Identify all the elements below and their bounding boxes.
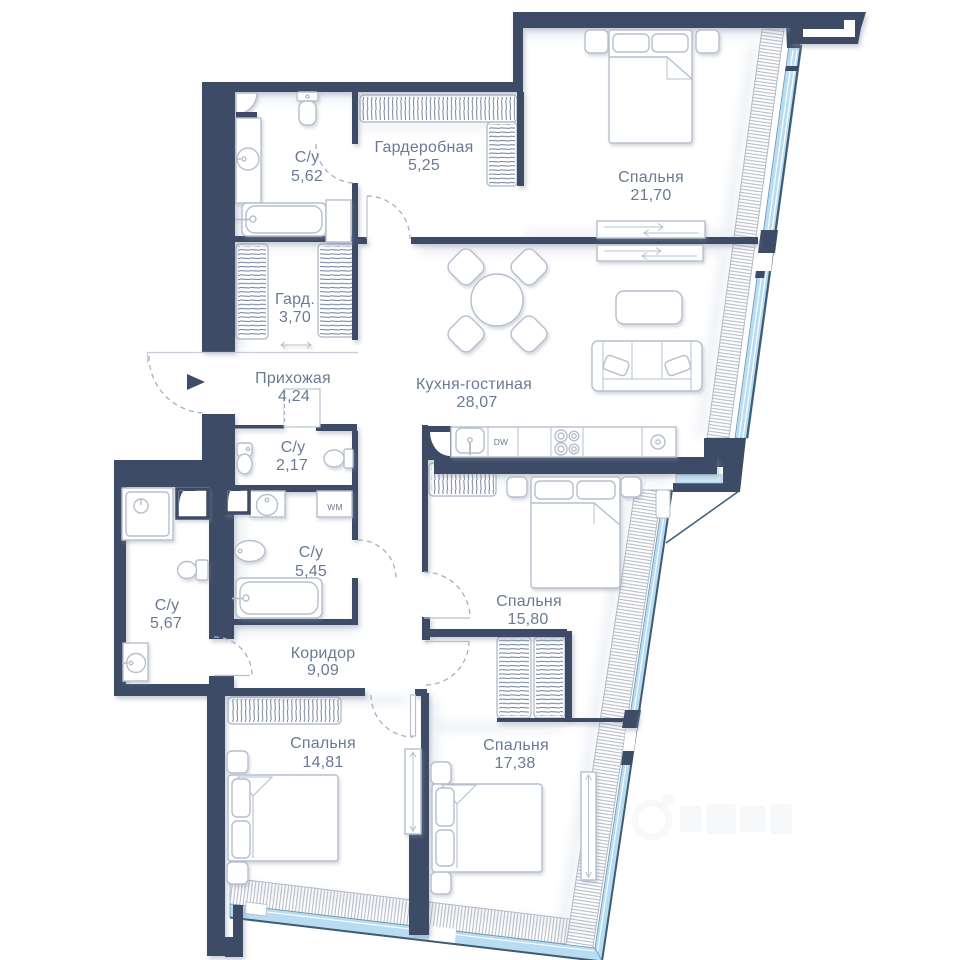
svg-text:С/у: С/у <box>299 544 324 561</box>
svg-text:С/у: С/у <box>281 439 306 456</box>
svg-text:2,17: 2,17 <box>276 457 308 474</box>
svg-text:9,09: 9,09 <box>307 662 339 679</box>
svg-text:Спальня: Спальня <box>618 169 684 186</box>
svg-text:Гард.: Гард. <box>275 291 315 308</box>
svg-text:С/у: С/у <box>155 597 180 614</box>
svg-text:Гардеробная: Гардеробная <box>375 139 474 156</box>
svg-text:21,70: 21,70 <box>630 187 671 204</box>
svg-text:WM: WM <box>327 502 343 512</box>
svg-text:28,07: 28,07 <box>456 394 497 411</box>
svg-text:Кухня-гостиная: Кухня-гостиная <box>416 376 532 393</box>
svg-text:17,38: 17,38 <box>494 755 535 772</box>
svg-text:14,81: 14,81 <box>302 754 343 771</box>
svg-text:Коридор: Коридор <box>291 645 356 662</box>
svg-text:DW: DW <box>494 437 509 447</box>
svg-text:15,80: 15,80 <box>507 611 548 628</box>
svg-text:Спальня: Спальня <box>496 593 562 610</box>
svg-text:Спальня: Спальня <box>483 737 549 754</box>
svg-text:5,67: 5,67 <box>150 615 182 632</box>
svg-text:5,62: 5,62 <box>291 168 323 185</box>
svg-text:Спальня: Спальня <box>290 735 356 752</box>
svg-text:4,24: 4,24 <box>278 388 310 405</box>
svg-text:Прихожая: Прихожая <box>255 370 331 387</box>
svg-text:5,25: 5,25 <box>408 157 440 174</box>
svg-text:3,70: 3,70 <box>279 309 311 326</box>
svg-text:С/у: С/у <box>295 149 320 166</box>
svg-text:5,45: 5,45 <box>295 563 327 580</box>
